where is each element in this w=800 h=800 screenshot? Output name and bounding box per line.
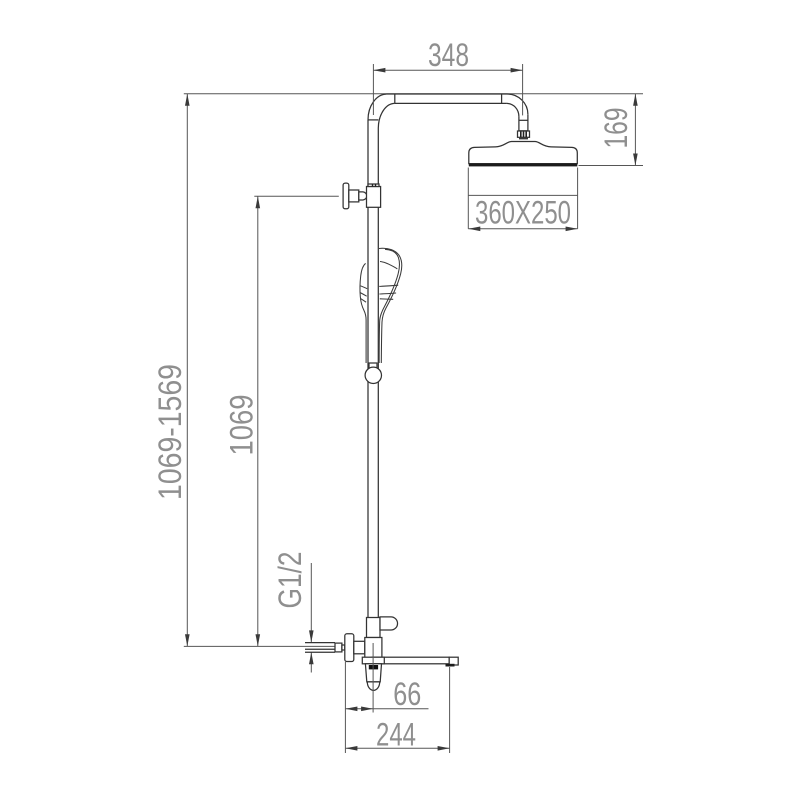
svg-text:1069-1569: 1069-1569 bbox=[152, 364, 188, 500]
svg-text:244: 244 bbox=[376, 717, 416, 753]
svg-text:348: 348 bbox=[428, 37, 469, 73]
svg-text:66: 66 bbox=[393, 676, 421, 712]
svg-text:169: 169 bbox=[598, 108, 634, 149]
svg-text:1069: 1069 bbox=[224, 395, 260, 456]
svg-text:360X250: 360X250 bbox=[475, 195, 571, 231]
svg-text:G1/2: G1/2 bbox=[272, 552, 308, 609]
